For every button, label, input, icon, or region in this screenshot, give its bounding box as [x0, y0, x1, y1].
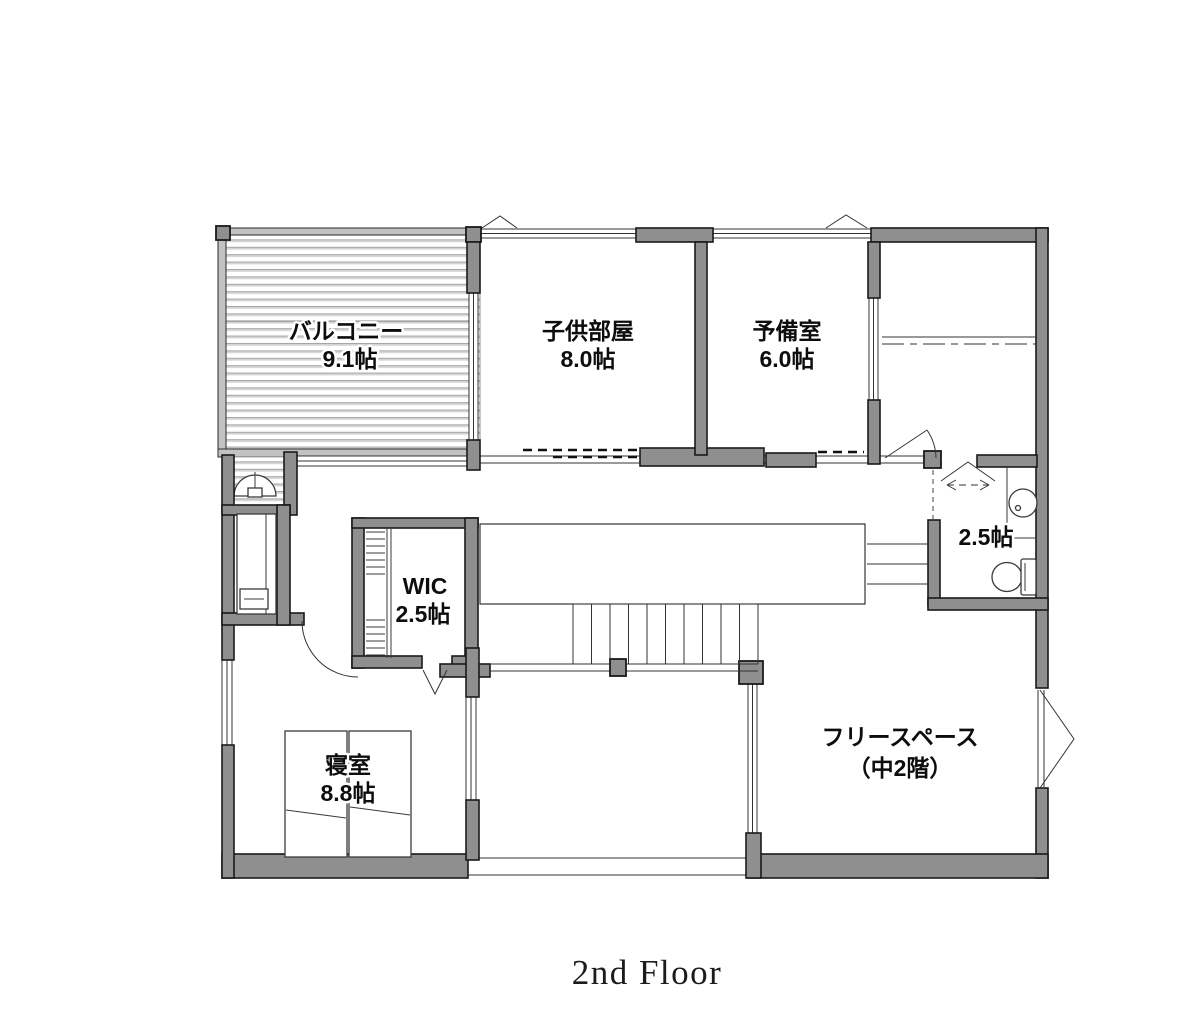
vent-window-icon	[482, 216, 517, 228]
wall-bottom-freespace	[748, 854, 1048, 878]
wall-top-center	[636, 228, 713, 242]
wic-wall-top	[352, 518, 478, 528]
wall-spare-storage-top	[868, 242, 880, 298]
stair-treads	[573, 604, 758, 664]
closet-interior	[237, 514, 276, 614]
washroom-wall-left	[928, 520, 940, 606]
wall-balcony-kids-bottom	[467, 440, 480, 470]
wall-bedroom-hall	[440, 664, 490, 677]
wall-post-hall-right	[924, 451, 941, 468]
closet-wall-bottom	[222, 613, 304, 625]
balcony-corner-post	[216, 226, 230, 240]
window-freespace-left	[748, 684, 757, 835]
balcony-label: バルコニー	[289, 318, 404, 344]
free-space-sub: （中2階）	[848, 755, 953, 781]
floor-caption: 2nd Floor	[572, 953, 723, 992]
wall-left-upper	[222, 455, 234, 660]
bay-window-icon	[1038, 690, 1074, 788]
wic-wall-right	[465, 518, 478, 668]
washroom-area: 2.5帖	[959, 524, 1014, 550]
wic-area: 2.5帖	[396, 601, 451, 627]
washroom-wall-bottom	[928, 598, 1048, 610]
sink-icon	[1009, 489, 1037, 517]
window-top-spare	[713, 229, 871, 238]
stairwell-void	[480, 524, 865, 604]
toilet-icon	[992, 559, 1036, 595]
door-arc-bedroom-icon	[302, 621, 358, 677]
landing-steps	[867, 544, 928, 584]
wall-left-lower	[222, 745, 234, 878]
vent-window-icon-2	[826, 215, 867, 228]
wic-label: WIC	[403, 573, 448, 599]
floorplan-page: バルコニー 9.1帖 子供部屋 8.0帖 予備室 6.0帖 WIC 2.5帖 2…	[0, 0, 1184, 1016]
window-hall-balcony	[290, 456, 467, 466]
spare-room-label: 予備室	[753, 318, 822, 344]
hanger-ticks-icon	[366, 532, 385, 655]
balcony-area: 9.1帖	[323, 346, 378, 372]
wall-top-right	[871, 228, 1048, 242]
slop-sink-niche	[226, 457, 285, 505]
wall-bedroom-right-bottom	[466, 800, 479, 860]
wic-hangers	[366, 528, 391, 658]
floorplan-drawing: バルコニー 9.1帖 子供部屋 8.0帖 予備室 6.0帖 WIC 2.5帖 2…	[0, 0, 1184, 1016]
sliding-door-panel-icon-2	[766, 453, 816, 467]
wall-right-upper	[1036, 228, 1048, 688]
freespace-wall-left-bottom	[746, 833, 761, 878]
free-space-label: フリースペース	[821, 724, 978, 750]
window-spare-storage	[869, 298, 878, 400]
closet-wall-right	[277, 505, 290, 625]
washroom-wall-top	[977, 455, 1037, 467]
stair-rail-post	[610, 659, 626, 676]
bedroom-label: 寝室	[325, 752, 371, 778]
spare-room-area: 6.0帖	[760, 346, 815, 372]
wic-wall-left	[352, 518, 364, 668]
balcony-railing-left	[218, 228, 226, 455]
balcony-railing-top	[218, 228, 480, 235]
window-balcony-kids	[469, 293, 478, 440]
bedroom-area: 8.8帖	[321, 780, 376, 806]
kids-room-label: 子供部屋	[542, 318, 634, 344]
window-bedroom-right	[466, 697, 476, 800]
staircase	[480, 524, 928, 676]
wall-bedroom-right-top	[466, 648, 479, 697]
wall-post-balcony-kids	[466, 227, 481, 242]
wall-spare-storage-bottom	[868, 400, 880, 464]
kids-room-area: 8.0帖	[561, 346, 616, 372]
wall-kids-spare	[695, 242, 707, 455]
window-top-kids	[481, 229, 636, 238]
wall-balcony-kids-top	[467, 242, 480, 293]
window-bedroom-left	[222, 660, 232, 745]
